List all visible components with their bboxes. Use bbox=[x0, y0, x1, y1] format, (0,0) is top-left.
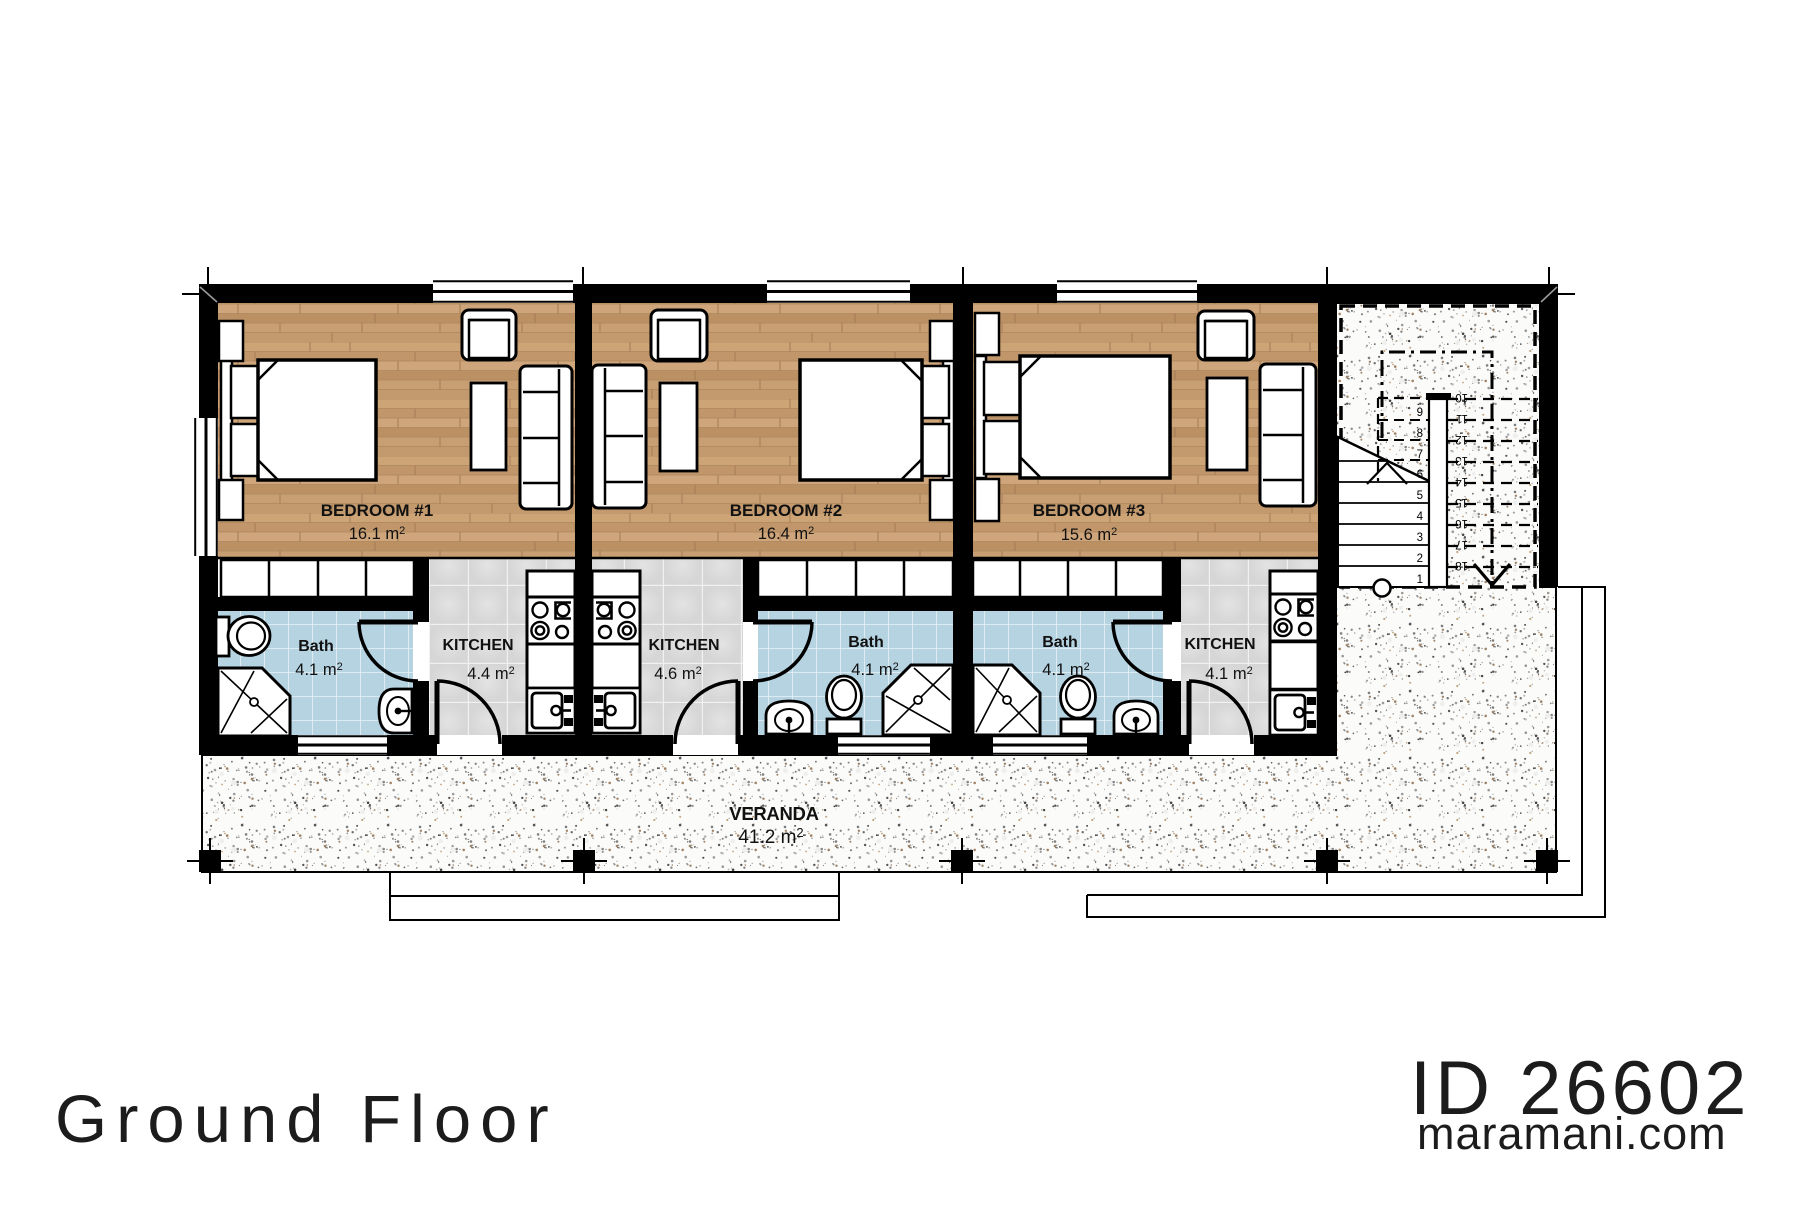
svg-text:5: 5 bbox=[1417, 490, 1423, 502]
svg-text:1: 1 bbox=[1417, 574, 1423, 586]
svg-text:4.1 m2: 4.1 m2 bbox=[295, 661, 342, 679]
svg-text:7: 7 bbox=[1417, 449, 1423, 461]
svg-text:6: 6 bbox=[1417, 469, 1423, 481]
svg-text:4.6 m2: 4.6 m2 bbox=[654, 665, 701, 683]
svg-text:12: 12 bbox=[1455, 433, 1468, 445]
svg-text:4.4 m2: 4.4 m2 bbox=[467, 665, 514, 683]
svg-text:KITCHEN: KITCHEN bbox=[648, 637, 719, 654]
svg-text:Bath: Bath bbox=[1042, 634, 1078, 651]
svg-text:2: 2 bbox=[1417, 553, 1423, 565]
svg-text:15: 15 bbox=[1455, 496, 1468, 508]
svg-text:4.1 m2: 4.1 m2 bbox=[851, 661, 898, 679]
svg-text:10: 10 bbox=[1455, 391, 1468, 403]
svg-text:16.4 m2: 16.4 m2 bbox=[758, 525, 815, 543]
svg-text:41.2 m2: 41.2 m2 bbox=[738, 825, 803, 848]
svg-text:14: 14 bbox=[1455, 475, 1468, 487]
svg-text:16: 16 bbox=[1455, 517, 1468, 529]
svg-text:17: 17 bbox=[1455, 538, 1468, 550]
svg-text:BEDROOM #1: BEDROOM #1 bbox=[321, 501, 433, 520]
svg-text:BEDROOM #3: BEDROOM #3 bbox=[1033, 501, 1145, 520]
svg-text:4.1 m2: 4.1 m2 bbox=[1205, 665, 1252, 683]
svg-text:13: 13 bbox=[1455, 454, 1468, 466]
svg-text:4: 4 bbox=[1417, 511, 1424, 523]
svg-text:18: 18 bbox=[1455, 559, 1468, 571]
svg-text:8: 8 bbox=[1417, 428, 1423, 440]
svg-text:15.6 m2: 15.6 m2 bbox=[1061, 526, 1118, 544]
svg-text:Bath: Bath bbox=[848, 634, 884, 651]
svg-text:KITCHEN: KITCHEN bbox=[1184, 636, 1255, 653]
svg-text:VERANDA: VERANDA bbox=[729, 803, 818, 824]
svg-text:KITCHEN: KITCHEN bbox=[442, 637, 513, 654]
svg-text:16.1 m2: 16.1 m2 bbox=[349, 525, 406, 543]
svg-text:3: 3 bbox=[1417, 532, 1423, 544]
svg-text:9: 9 bbox=[1417, 407, 1423, 419]
svg-text:Bath: Bath bbox=[298, 638, 334, 655]
svg-text:BEDROOM #2: BEDROOM #2 bbox=[730, 501, 842, 520]
svg-text:11: 11 bbox=[1456, 412, 1468, 424]
svg-text:4.1 m2: 4.1 m2 bbox=[1042, 661, 1089, 679]
